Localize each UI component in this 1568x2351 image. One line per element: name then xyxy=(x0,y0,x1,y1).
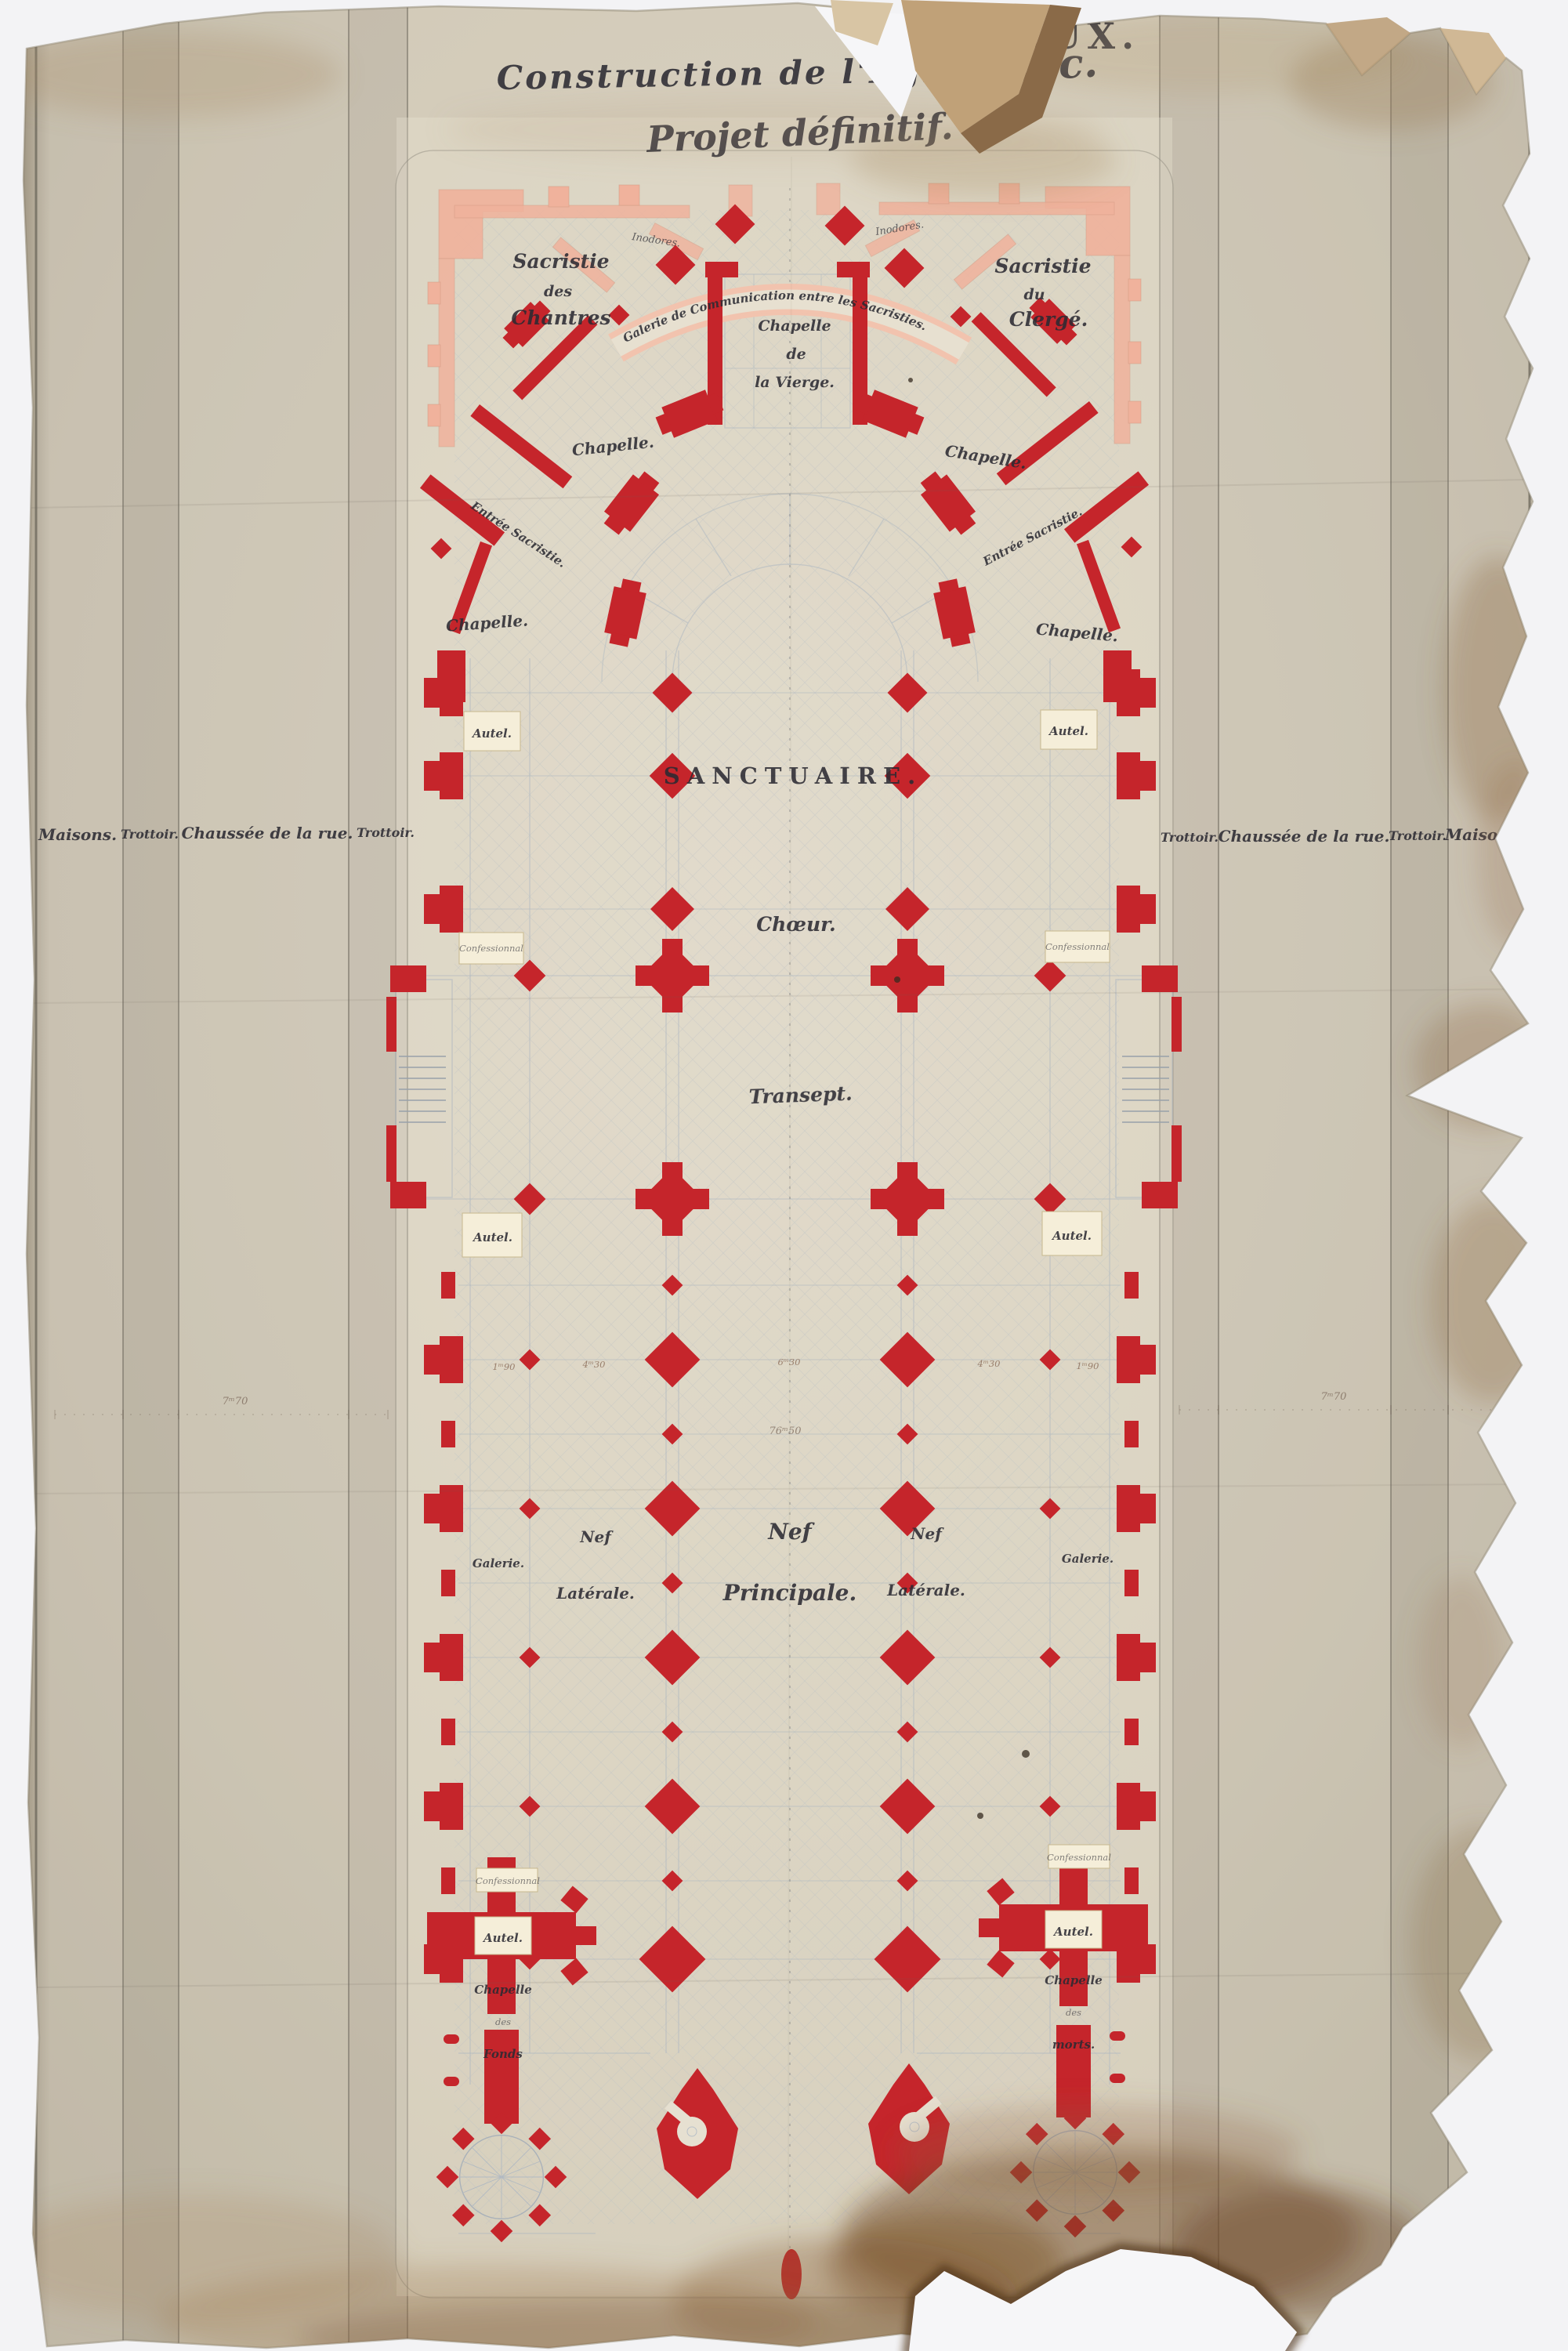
autel-transept-right-label: Autel. xyxy=(1051,1229,1092,1243)
confessionnal-left-label: Confessionnal xyxy=(459,943,523,954)
chapelle-morts-line2: des xyxy=(1066,2007,1081,2018)
street-right-trottoir2: Trottoir. xyxy=(1389,828,1447,843)
street-right-chaussee: Chaussée de la rue. xyxy=(1219,827,1390,846)
chapelle-fonds-line3: Fonds xyxy=(483,2047,523,2061)
sacristie-chantres-line1: Sacristie xyxy=(512,250,609,273)
street-right-trottoir1: Trottoir. xyxy=(1161,830,1219,845)
confessionnal-bottom-right-label: Confessionnal xyxy=(1047,1852,1111,1863)
nef-laterale-left-line1: Nef xyxy=(579,1527,614,1546)
street-left-trottoir2: Trottoir. xyxy=(357,825,415,840)
chapelle-fonds-line2: des xyxy=(495,2016,511,2027)
nef-laterale-right-line1: Nef xyxy=(910,1524,944,1543)
galerie-left-label: Galerie. xyxy=(473,1556,524,1570)
nef-laterale-left-line2: Latérale. xyxy=(556,1584,635,1603)
autel-transept-left-label: Autel. xyxy=(472,1230,512,1244)
autel-morts-label: Autel. xyxy=(1052,1925,1093,1939)
autel-sanctuary-left-label: Autel. xyxy=(471,726,512,741)
street-left-trottoir1: Trottoir. xyxy=(121,827,179,842)
autel-sanctuary-right-label: Autel. xyxy=(1048,724,1088,738)
sacristie-clerge-line2: du xyxy=(1023,286,1045,303)
transept-label: Transept. xyxy=(748,1082,853,1109)
chapelle-fonds-line1: Chapelle xyxy=(474,1983,532,1997)
sacristie-chantres-line2: des xyxy=(544,283,572,300)
autel-fonds-label: Autel. xyxy=(482,1931,523,1945)
chapelle-morts-line1: Chapelle xyxy=(1045,1973,1103,1987)
confessionnal-bottom-left-label: Confessionnal xyxy=(476,1875,540,1886)
dim-bay-mid-left: 4ᵐ30 xyxy=(581,1359,605,1370)
archival-plan-photo: ROUX. Construction de l'Eglise St Luc. P… xyxy=(0,0,1568,2351)
chapelle-vierge-line1: Chapelle xyxy=(758,317,831,335)
confessionnal-right-label: Confessionnal xyxy=(1045,941,1110,952)
street-left-maisons: Maisons. xyxy=(38,825,117,844)
chapelle-vierge-line3: la Vierge. xyxy=(755,374,835,391)
nef-laterale-right-line2: Latérale. xyxy=(886,1581,965,1599)
chapelle-vierge-line2: de xyxy=(786,346,806,363)
sacristie-clerge-line3: Clergé. xyxy=(1009,308,1088,331)
sacristie-clerge-line1: Sacristie xyxy=(994,255,1091,277)
dim-total-width: 76ᵐ50 xyxy=(769,1425,801,1437)
chapelle-morts-line3: morts. xyxy=(1052,2038,1095,2052)
dim-bay-mid-right: 4ᵐ30 xyxy=(976,1358,1000,1369)
galerie-right-label: Galerie. xyxy=(1062,1552,1114,1566)
street-left-chaussee: Chaussée de la rue. xyxy=(182,824,353,842)
nef-principale-line1: Nef xyxy=(767,1519,815,1545)
dim-margin-left: 7ᵐ70 xyxy=(223,1396,248,1407)
sacristie-chantres-line3: Chantres xyxy=(511,306,610,329)
dim-bay-small-right: 1ᵐ90 xyxy=(1076,1360,1099,1371)
sanctuaire-label: Sanctuaire. xyxy=(664,763,922,789)
dim-bay-small-left: 1ᵐ90 xyxy=(492,1361,515,1372)
choeur-label: Chœur. xyxy=(756,913,836,936)
dim-margin-right: 7ᵐ70 xyxy=(1321,1391,1347,1403)
